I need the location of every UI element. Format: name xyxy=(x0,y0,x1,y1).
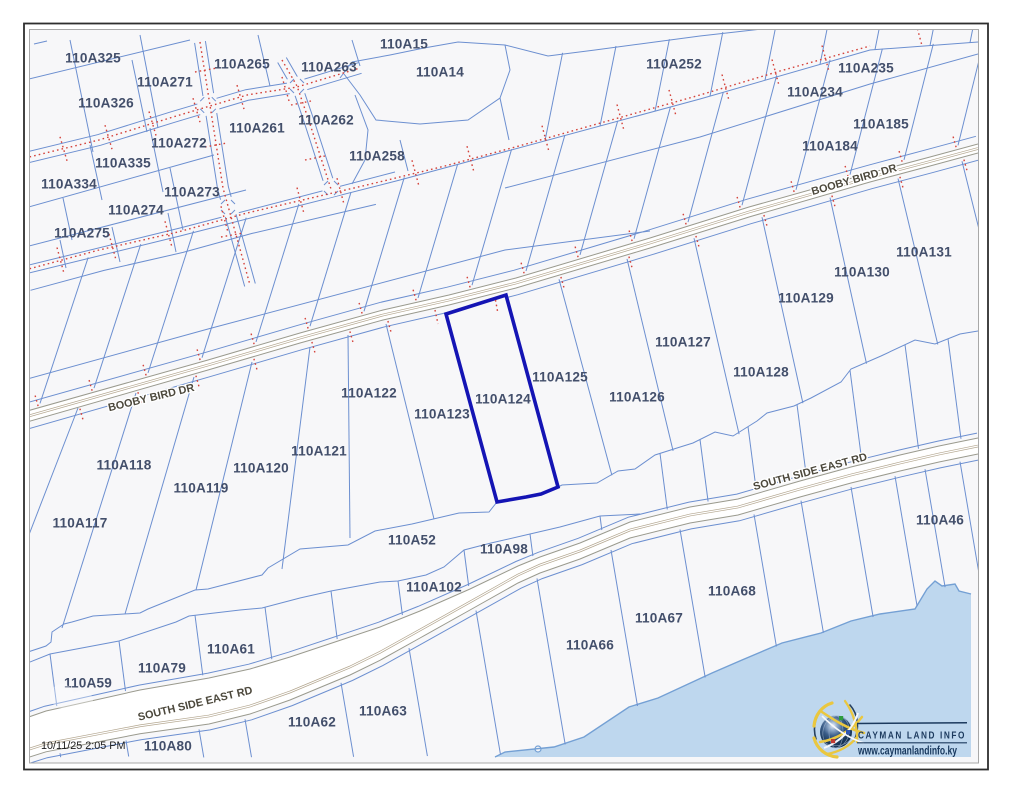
svg-text:CAYMAN LAND INFO: CAYMAN LAND INFO xyxy=(858,730,966,742)
svg-text:110A62: 110A62 xyxy=(288,715,336,730)
svg-text:110A271: 110A271 xyxy=(137,75,193,90)
svg-text:110A262: 110A262 xyxy=(298,113,354,128)
svg-text:110A127: 110A127 xyxy=(655,335,711,350)
svg-text:110A131: 110A131 xyxy=(896,245,952,260)
svg-text:110A98: 110A98 xyxy=(480,542,528,557)
svg-text:110A325: 110A325 xyxy=(65,51,121,66)
svg-text:110A126: 110A126 xyxy=(609,390,665,405)
svg-text:110A117: 110A117 xyxy=(52,516,107,531)
svg-text:110A67: 110A67 xyxy=(635,611,683,626)
svg-text:110A79: 110A79 xyxy=(138,661,186,676)
svg-text:110A258: 110A258 xyxy=(349,149,405,164)
svg-text:110A120: 110A120 xyxy=(233,461,289,476)
svg-text:110A46: 110A46 xyxy=(916,513,964,528)
svg-text:110A119: 110A119 xyxy=(173,481,228,496)
svg-text:110A273: 110A273 xyxy=(164,185,220,200)
svg-text:110A121: 110A121 xyxy=(291,444,347,459)
svg-text:110A235: 110A235 xyxy=(838,61,894,76)
svg-text:110A125: 110A125 xyxy=(532,370,588,385)
svg-text:110A61: 110A61 xyxy=(207,642,255,657)
svg-text:110A68: 110A68 xyxy=(708,584,756,599)
svg-text:110A52: 110A52 xyxy=(388,533,436,548)
svg-text:110A124: 110A124 xyxy=(475,392,531,407)
svg-text:110A14: 110A14 xyxy=(416,65,464,80)
svg-text:110A272: 110A272 xyxy=(151,136,207,151)
svg-text:110A184: 110A184 xyxy=(802,139,858,154)
svg-text:110A122: 110A122 xyxy=(341,386,397,401)
svg-text:110A15: 110A15 xyxy=(380,37,428,52)
svg-text:110A66: 110A66 xyxy=(566,638,614,653)
svg-text:110A326: 110A326 xyxy=(78,96,134,111)
svg-text:10/11/25 2:05 PM: 10/11/25 2:05 PM xyxy=(41,740,125,752)
svg-text:www.caymanlandinfo.ky: www.caymanlandinfo.ky xyxy=(857,746,957,758)
svg-text:110A334: 110A334 xyxy=(41,177,97,192)
svg-text:110A234: 110A234 xyxy=(787,85,843,100)
svg-text:110A275: 110A275 xyxy=(54,226,110,241)
svg-text:110A274: 110A274 xyxy=(108,203,164,218)
svg-text:110A263: 110A263 xyxy=(301,60,357,75)
svg-text:110A130: 110A130 xyxy=(834,265,890,280)
svg-text:110A123: 110A123 xyxy=(414,407,470,422)
svg-text:110A102: 110A102 xyxy=(406,580,462,595)
svg-text:110A252: 110A252 xyxy=(646,57,702,72)
svg-text:110A129: 110A129 xyxy=(778,291,834,306)
svg-text:110A118: 110A118 xyxy=(96,458,151,473)
svg-text:110A261: 110A261 xyxy=(229,121,285,136)
svg-text:110A63: 110A63 xyxy=(359,704,407,719)
svg-text:110A335: 110A335 xyxy=(95,156,151,171)
svg-text:110A80: 110A80 xyxy=(144,739,192,754)
svg-text:110A265: 110A265 xyxy=(214,57,270,72)
svg-text:110A185: 110A185 xyxy=(853,117,909,132)
svg-text:110A128: 110A128 xyxy=(733,365,789,380)
